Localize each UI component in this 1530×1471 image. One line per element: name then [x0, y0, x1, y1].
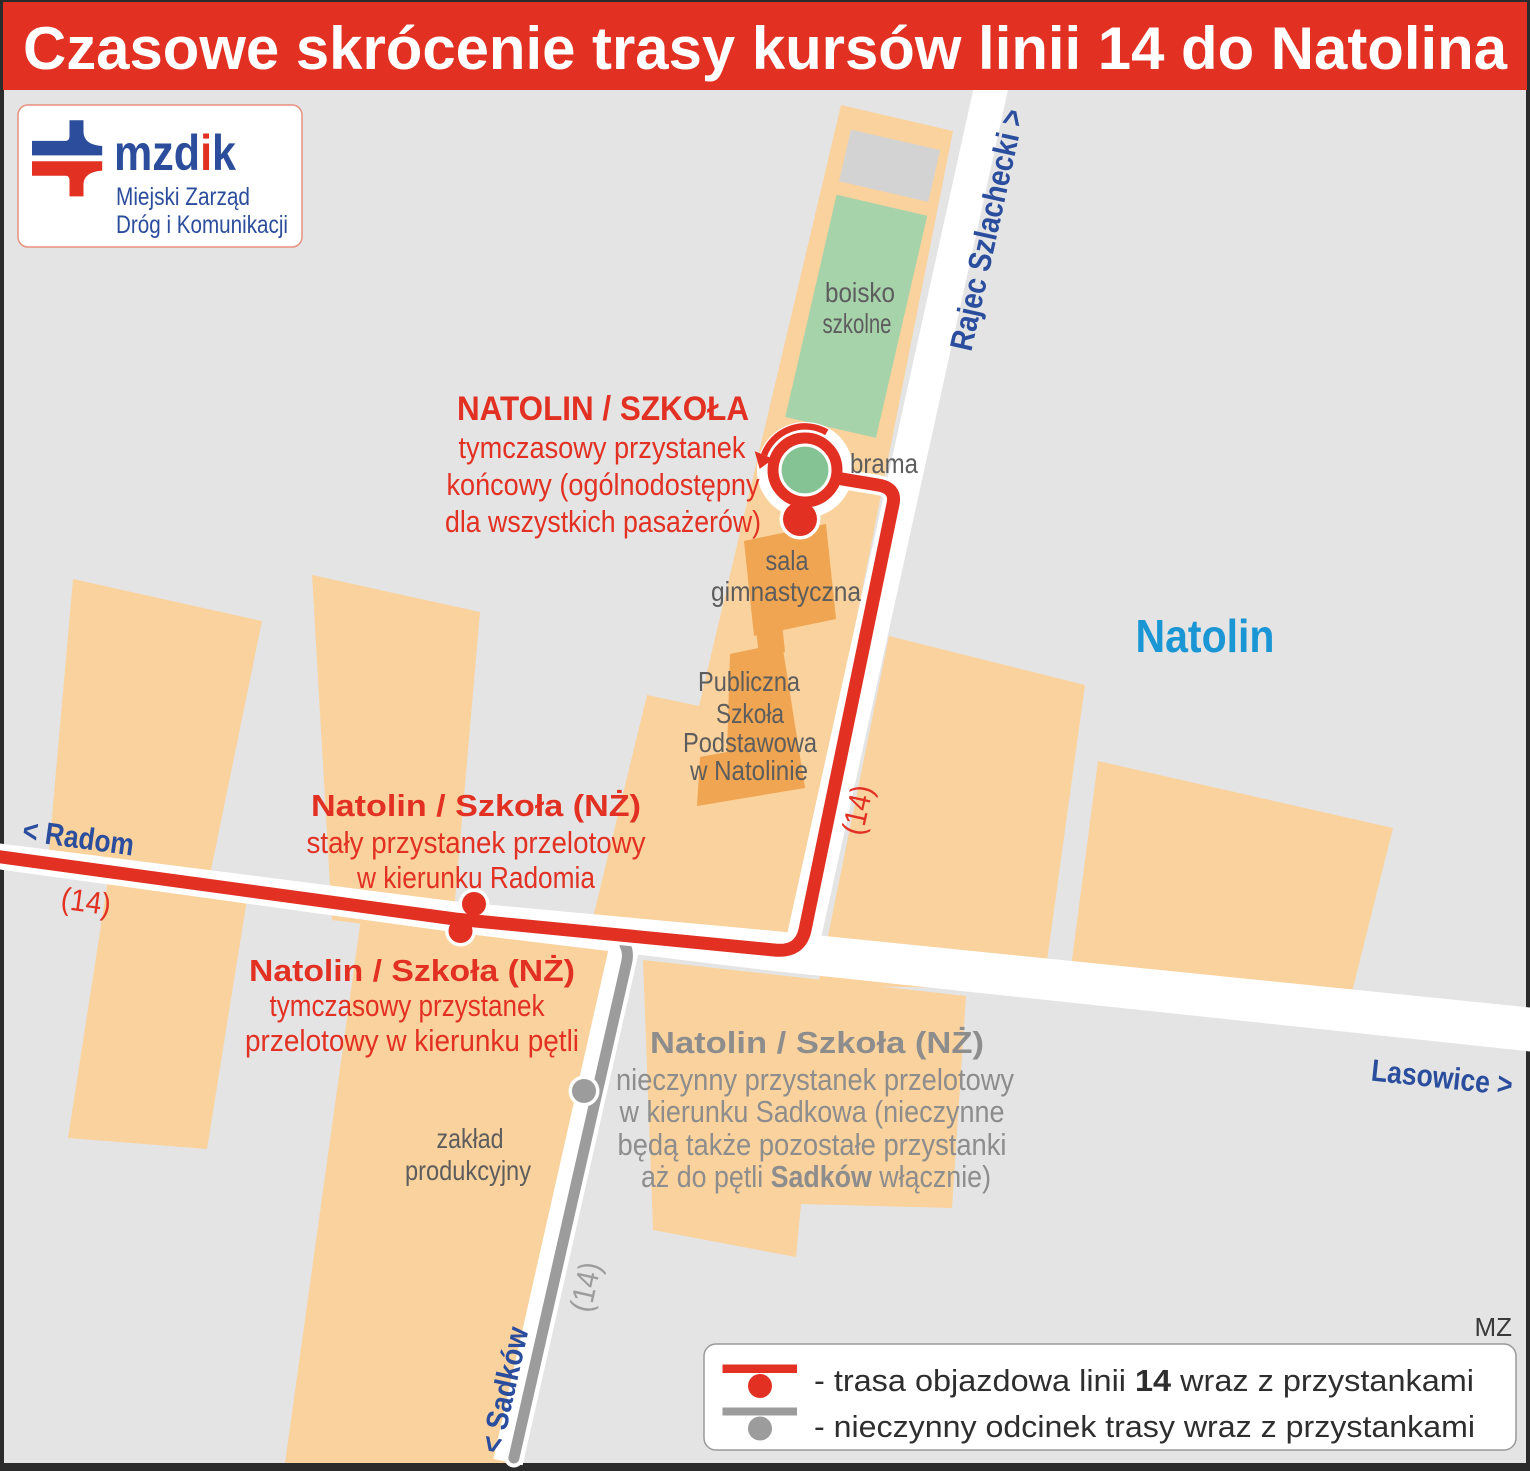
svg-text:MZ: MZ — [1474, 1312, 1512, 1342]
svg-text:brama: brama — [850, 448, 918, 479]
svg-text:nieczynny przystanek przelotow: nieczynny przystanek przelotowy — [616, 1062, 1014, 1097]
svg-text:- trasa objazdowa linii 14 wra: - trasa objazdowa linii 14 wraz z przyst… — [814, 1363, 1474, 1398]
svg-text:szkolne: szkolne — [823, 308, 892, 339]
svg-text:Natolin: Natolin — [1136, 610, 1275, 662]
svg-text:mzdik: mzdik — [114, 125, 236, 181]
svg-text:NATOLIN / SZKOŁA: NATOLIN / SZKOŁA — [457, 390, 749, 428]
svg-text:Szkoła: Szkoła — [716, 698, 784, 729]
svg-text:Natolin / Szkoła (NŻ): Natolin / Szkoła (NŻ) — [249, 953, 575, 988]
svg-text:zakład: zakład — [437, 1123, 504, 1154]
svg-text:Czasowe skrócenie trasy kursów: Czasowe skrócenie trasy kursów linii 14 … — [23, 15, 1508, 82]
svg-text:(14): (14) — [59, 881, 113, 922]
svg-text:dla wszystkich pasażerów): dla wszystkich pasażerów) — [445, 504, 761, 539]
svg-text:w kierunku Sadkowa (nieczynne: w kierunku Sadkowa (nieczynne — [619, 1094, 1005, 1129]
svg-text:tymczasowy przystanek: tymczasowy przystanek — [459, 430, 746, 465]
svg-text:w kierunku Radomia: w kierunku Radomia — [356, 860, 595, 895]
svg-text:Miejski Zarząd: Miejski Zarząd — [116, 183, 250, 211]
svg-text:w Natolinie: w Natolinie — [689, 755, 808, 786]
svg-text:tymczasowy przystanek: tymczasowy przystanek — [270, 988, 545, 1023]
svg-text:Publiczna: Publiczna — [698, 666, 800, 697]
svg-text:aż do pętli Sadków włącznie): aż do pętli Sadków włącznie) — [641, 1159, 991, 1194]
svg-text:końcowy (ogólnodostępny: końcowy (ogólnodostępny — [447, 467, 760, 502]
svg-text:sala: sala — [766, 545, 809, 576]
svg-text:Natolin / Szkoła (NŻ): Natolin / Szkoła (NŻ) — [311, 788, 641, 823]
svg-text:produkcyjny: produkcyjny — [405, 1155, 531, 1186]
svg-text:Dróg i Komunikacji: Dróg i Komunikacji — [116, 211, 288, 239]
svg-text:gimnastyczna: gimnastyczna — [711, 576, 861, 607]
svg-text:- nieczynny odcinek trasy wraz: - nieczynny odcinek trasy wraz z przysta… — [814, 1409, 1475, 1444]
svg-text:Natolin / Szkoła (NŻ): Natolin / Szkoła (NŻ) — [650, 1025, 984, 1060]
svg-text:będą także pozostałe przystank: będą także pozostałe przystanki — [618, 1127, 1007, 1162]
svg-text:stały przystanek przelotowy: stały przystanek przelotowy — [307, 825, 646, 860]
svg-text:Podstawowa: Podstawowa — [683, 727, 817, 758]
svg-text:przelotowy w kierunku pętli: przelotowy w kierunku pętli — [245, 1023, 579, 1058]
svg-text:boisko: boisko — [825, 277, 895, 308]
